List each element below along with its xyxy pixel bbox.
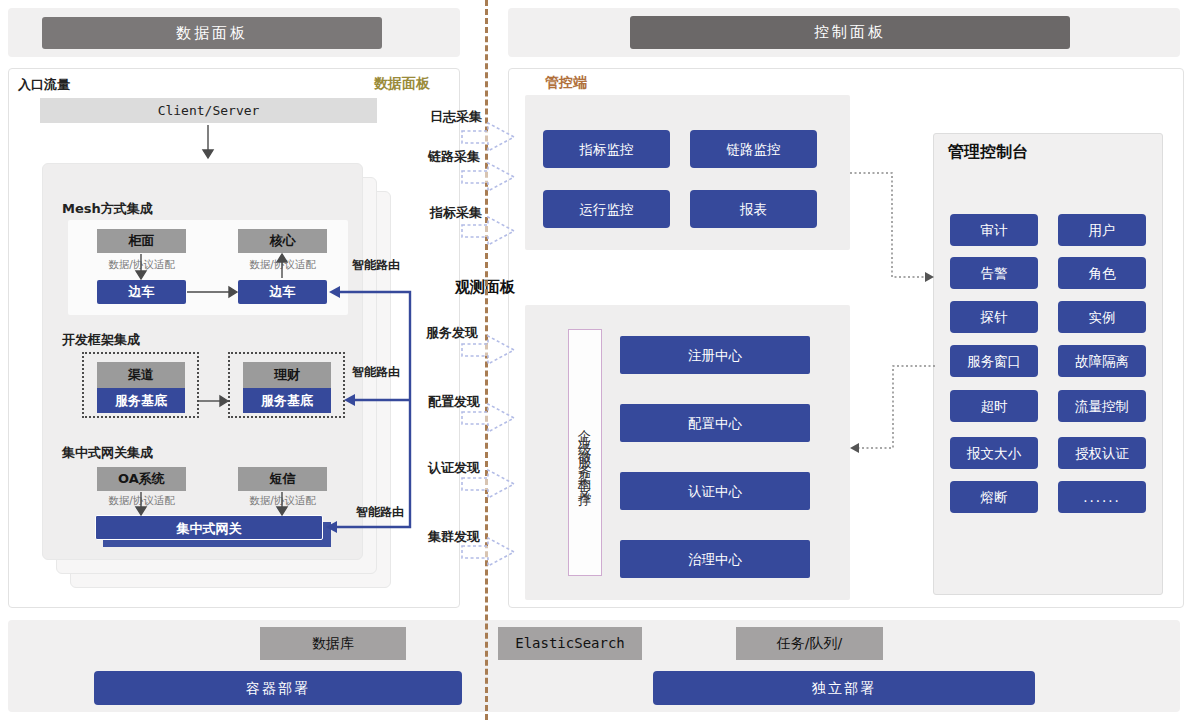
- registry-center-bar: 注册中心: [620, 336, 810, 374]
- standalone-deploy-bar: 独立部署: [653, 671, 1035, 705]
- console-button-service-window: 服务窗口: [950, 345, 1038, 377]
- client-server-box: Client/Server: [40, 98, 377, 123]
- task-queue-box: 任务/队列/: [736, 627, 883, 660]
- panel-divider-dashed-line: [485, 0, 488, 720]
- console-button-role: 角色: [1058, 257, 1146, 289]
- central-gateway-bar: 集中式网关: [95, 515, 323, 540]
- auth-center-bar: 认证中心: [620, 472, 810, 510]
- console-button-audit: 审计: [950, 214, 1038, 246]
- metric-monitor-button: 指标监控: [543, 130, 670, 168]
- architecture-diagram: 数据面板 控制面板 入口流量 数据面板 Client/Server Mesh方式…: [0, 0, 1189, 720]
- management-console-title: 管理控制台: [948, 142, 1028, 163]
- container-deploy-bar: 容器部署: [94, 671, 462, 705]
- console-button-authz: 授权认证: [1058, 437, 1146, 469]
- console-button-instance: 实例: [1058, 301, 1146, 333]
- gateway-section-title: 集中式网关集成: [62, 444, 153, 462]
- flow-label-trace-collect: 链路采集: [420, 148, 480, 166]
- smart-route-label-1: 智能路由: [352, 257, 400, 274]
- console-button-flow-control: 流量控制: [1058, 390, 1146, 422]
- runtime-monitor-button: 运行监控: [543, 190, 670, 228]
- config-center-bar: 配置中心: [620, 404, 810, 442]
- smart-route-label-3: 智能路由: [356, 504, 404, 521]
- console-button-more: ......: [1058, 481, 1146, 513]
- data-plane-title: 数据面板: [42, 17, 382, 49]
- console-button-fault-isolation: 故障隔离: [1058, 345, 1146, 377]
- database-box: 数据库: [260, 627, 406, 660]
- smart-route-label-2: 智能路由: [352, 364, 400, 381]
- flow-label-auth-discovery: 认证发现: [420, 459, 480, 477]
- report-button: 报表: [690, 190, 817, 228]
- flow-label-config-discovery: 配置发现: [420, 393, 480, 411]
- gateway-adapter-label-right: 数据/协议适配: [238, 494, 327, 508]
- manage-end-label: 管控端: [545, 74, 587, 92]
- console-button-circuit-break: 熔断: [950, 481, 1038, 513]
- dashed-block-arrows: [462, 123, 514, 566]
- elasticsearch-box: ElasticSearch: [498, 627, 642, 660]
- console-button-message-size: 报文大小: [950, 437, 1038, 469]
- wealth-box: 理财: [243, 362, 331, 388]
- channel-box: 渠道: [97, 362, 185, 388]
- mesh-section-title: Mesh方式集成: [62, 200, 153, 218]
- sidecar-right-box: 边车: [238, 280, 327, 304]
- service-base-right-box: 服务基底: [243, 388, 331, 413]
- flow-label-cluster-discovery: 集群发现: [420, 528, 480, 546]
- trace-monitor-button: 链路监控: [690, 130, 817, 168]
- console-button-probe: 探针: [950, 301, 1038, 333]
- mesh-adapter-label-left: 数据/协议适配: [97, 258, 186, 272]
- inbound-traffic-label: 入口流量: [18, 76, 70, 94]
- console-button-alert: 告警: [950, 257, 1038, 289]
- flow-label-log-collect: 日志采集: [422, 108, 482, 126]
- gateway-adapter-label-left: 数据/协议适配: [97, 494, 186, 508]
- console-button-timeout: 超时: [950, 390, 1038, 422]
- sms-box: 短信: [238, 467, 327, 491]
- oa-system-box: OA系统: [97, 467, 186, 491]
- sidecar-left-box: 边车: [97, 280, 186, 304]
- governance-center-bar: 治理中心: [620, 540, 810, 578]
- flow-label-metric-collect: 指标采集: [422, 204, 482, 222]
- flow-label-service-discovery: 服务发现: [418, 324, 478, 342]
- mesh-counter-box: 柜面: [97, 229, 186, 253]
- framework-section-title: 开发框架集成: [62, 331, 140, 349]
- mesh-adapter-label-right: 数据/协议适配: [238, 258, 327, 272]
- enterprise-support-vertical-box: 企业级微服务架构支撑: [568, 329, 602, 576]
- service-base-left-box: 服务基底: [97, 388, 185, 413]
- data-panel-corner-label: 数据面板: [330, 75, 430, 93]
- control-plane-title: 控制面板: [630, 16, 1070, 49]
- mesh-core-box: 核心: [238, 229, 327, 253]
- console-button-user: 用户: [1058, 214, 1146, 246]
